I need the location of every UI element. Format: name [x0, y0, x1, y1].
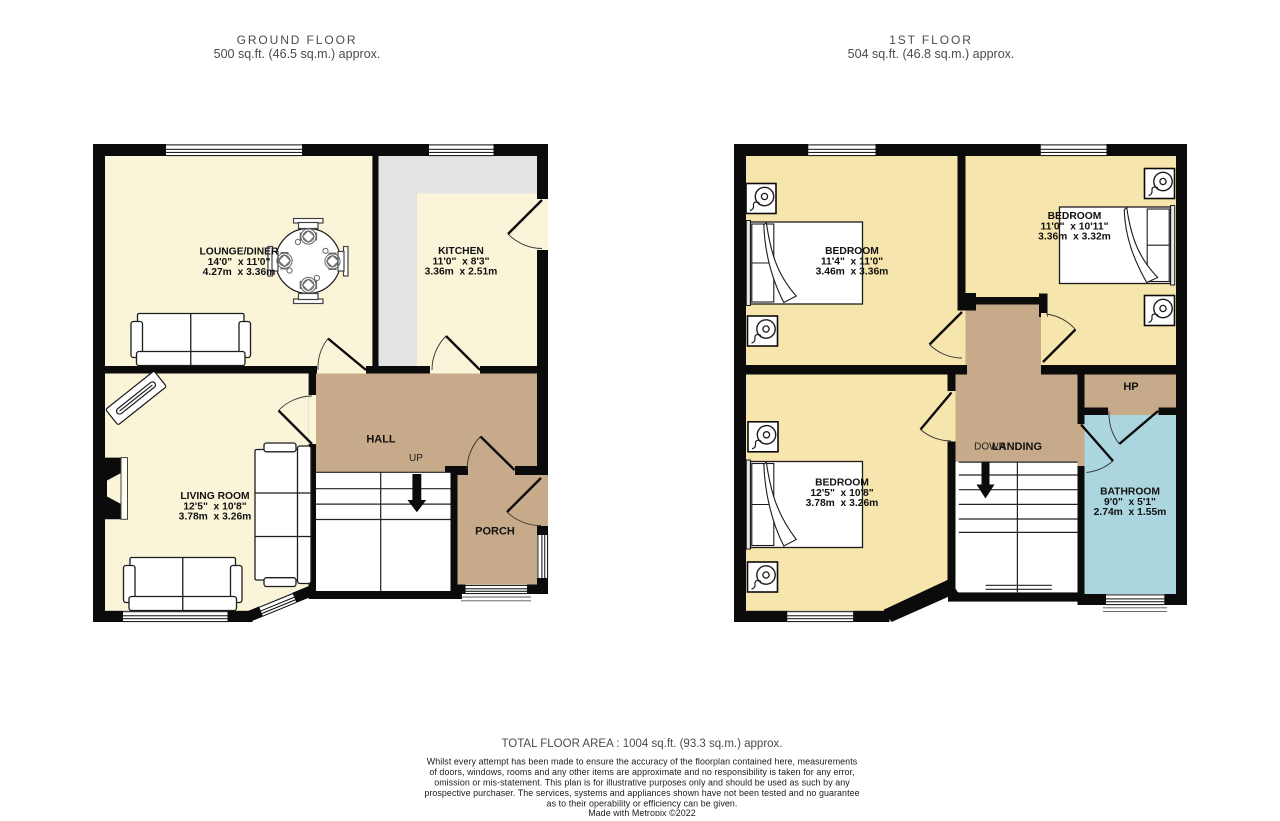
- svg-text:HP: HP: [1123, 381, 1138, 393]
- svg-text:3.78m x 3.26m: 3.78m x 3.26m: [806, 498, 879, 509]
- svg-text:3.46m x 3.36m: 3.46m x 3.36m: [816, 267, 889, 278]
- svg-text:504 sq.ft. (46.8 sq.m.) approx: 504 sq.ft. (46.8 sq.m.) approx.: [848, 47, 1015, 61]
- svg-text:prospective purchaser. The ser: prospective purchaser. The services, sys…: [424, 788, 859, 798]
- svg-text:as to their operability or eff: as to their operability or efficiency ca…: [547, 799, 738, 809]
- svg-text:of doors, windows, rooms and a: of doors, windows, rooms and any other i…: [429, 767, 854, 777]
- svg-text:LANDING: LANDING: [992, 441, 1042, 453]
- svg-text:UP: UP: [409, 453, 423, 464]
- svg-text:GROUND FLOOR: GROUND FLOOR: [237, 33, 358, 47]
- svg-text:1ST FLOOR: 1ST FLOOR: [889, 33, 973, 47]
- svg-text:500 sq.ft. (46.5 sq.m.) approx: 500 sq.ft. (46.5 sq.m.) approx.: [214, 47, 381, 61]
- svg-text:omission or mis-statement. Thi: omission or mis-statement. This plan is …: [434, 778, 850, 788]
- svg-text:3.78m x 3.26m: 3.78m x 3.26m: [179, 512, 252, 523]
- svg-text:TOTAL FLOOR AREA : 1004 sq.ft.: TOTAL FLOOR AREA : 1004 sq.ft. (93.3 sq.…: [501, 738, 782, 750]
- svg-text:Whilst every attempt has been: Whilst every attempt has been made to en…: [427, 757, 858, 767]
- svg-text:3.36m x 3.32m: 3.36m x 3.32m: [1038, 232, 1111, 243]
- svg-text:Made with Metropix ©2022: Made with Metropix ©2022: [588, 808, 696, 816]
- svg-text:2.74m x 1.55m: 2.74m x 1.55m: [1094, 507, 1167, 518]
- svg-text:HALL: HALL: [366, 434, 396, 446]
- svg-text:PORCH: PORCH: [475, 526, 515, 538]
- svg-text:4.27m x 3.36m: 4.27m x 3.36m: [203, 267, 276, 278]
- svg-text:3.36m x 2.51m: 3.36m x 2.51m: [425, 267, 498, 278]
